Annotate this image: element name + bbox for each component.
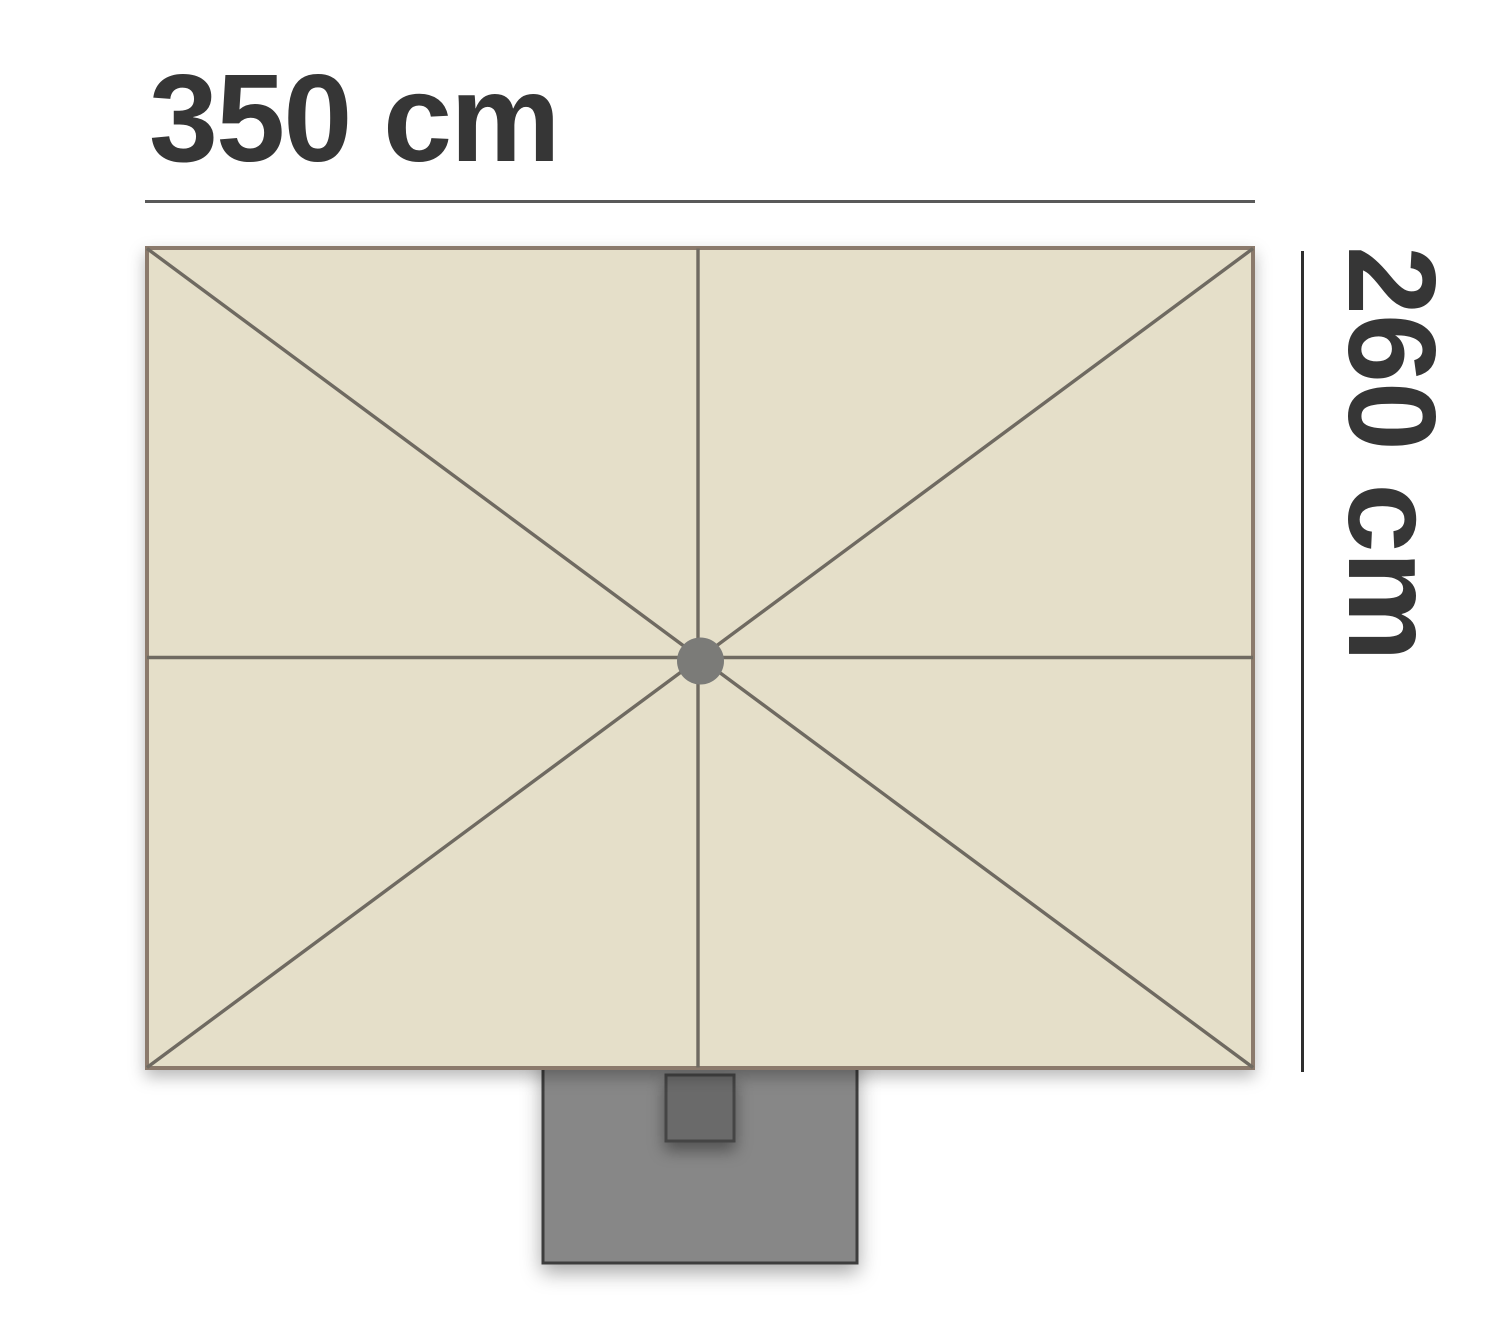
svg-text:350 cm: 350 cm	[149, 50, 559, 188]
svg-text:260 cm: 260 cm	[1322, 246, 1460, 661]
